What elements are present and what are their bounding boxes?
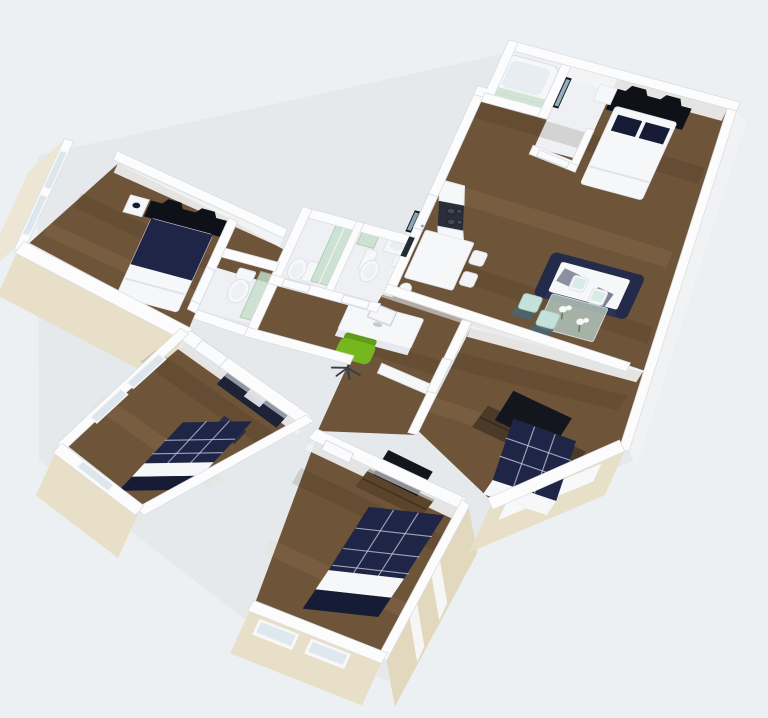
floor-plan-stage: [0, 0, 768, 718]
apartment-3d-floor-plan-render: [0, 0, 768, 718]
